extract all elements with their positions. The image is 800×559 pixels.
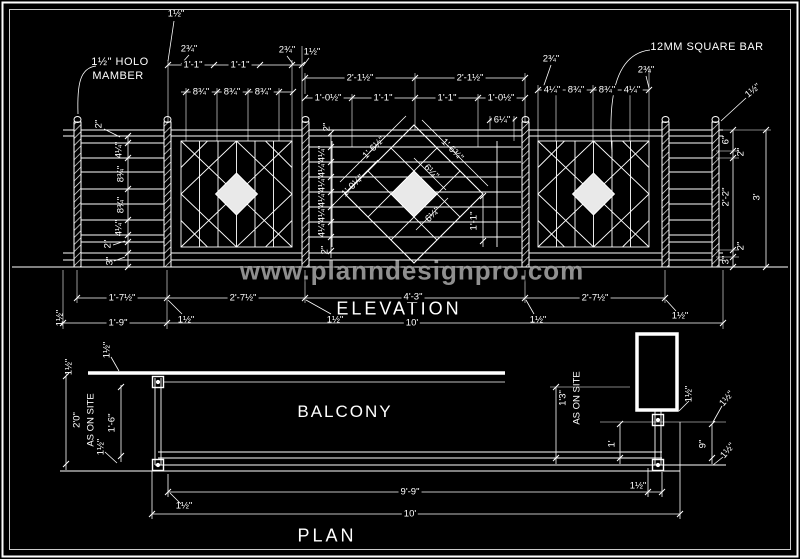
holo-member-callout-line2: MAMBER	[92, 70, 143, 82]
dim-label: 2¾"	[638, 65, 655, 75]
dim-label: 4¼"	[114, 220, 124, 237]
dim-label: 1½"	[168, 9, 185, 19]
dim-label: 1'-9"	[107, 318, 130, 328]
plan-title: PLAN	[297, 526, 356, 547]
dim-label: 1½"	[102, 342, 112, 359]
dim-label: 10'	[404, 318, 420, 328]
dim-label: 1½"	[530, 315, 547, 325]
dim-label: 1'-6"	[107, 414, 117, 433]
dim-label: 1'-0½"	[486, 93, 517, 103]
dim-label: 1½"	[55, 310, 65, 327]
dim-label: 2'-7½"	[228, 293, 259, 303]
dim-label: 6¼"	[492, 115, 513, 125]
plan-dims	[66, 357, 723, 519]
dim-label: 9"	[698, 440, 708, 449]
dim-label: 1½"	[176, 501, 193, 511]
dim-label: 1½"	[630, 481, 647, 491]
dim-label: 3"	[721, 256, 731, 265]
plan-linework	[60, 334, 726, 471]
dim-label: 1'-1"	[436, 93, 459, 103]
watermark: www.planndesignpro.com	[240, 256, 585, 287]
dim-label: 8¾"	[253, 87, 274, 97]
dim-label: 2'-1½"	[345, 73, 376, 83]
holo-member-callout-line1: 1½" HOLO	[91, 56, 148, 68]
dim-label: 1'-1"	[229, 60, 252, 70]
dim-label: 2'-7½"	[580, 293, 611, 303]
dim-label: AS ON SITE	[572, 371, 582, 424]
dim-label: 4¼"	[114, 142, 124, 159]
dim-label: 2¾"	[181, 44, 198, 54]
dim-label: 2"	[320, 246, 330, 255]
elevation-title: ELEVATION	[336, 299, 461, 320]
square-bar-callout: 12MM SQUARE BAR	[650, 41, 763, 53]
dim-label: 1'-0½"	[313, 93, 344, 103]
dim-label: 1½"	[178, 315, 195, 325]
dim-label: 4¼"	[622, 85, 643, 95]
dim-label: 4¼"	[542, 85, 563, 95]
column	[637, 334, 677, 410]
dim-label: 1½"	[672, 311, 689, 321]
dim-label: 1'	[607, 440, 617, 447]
dim-label: 2'0"	[72, 412, 82, 428]
cad-drawing: www.planndesignpro.com ELEVATION PLAN BA…	[0, 0, 800, 559]
dim-label: 8¾"	[566, 85, 587, 95]
dim-label: 1½"	[64, 359, 74, 376]
dim-label: 1½"	[684, 386, 694, 403]
dim-label: 3'	[752, 193, 762, 200]
dim-label: 1'-1"	[469, 212, 479, 231]
dim-label: 1'-1"	[372, 93, 395, 103]
dim-label: 1'3"	[558, 390, 568, 406]
dim-label: 2"	[103, 240, 113, 249]
dim-label: 4¼"	[317, 221, 327, 238]
dim-label: 10'	[402, 509, 418, 519]
dim-label: 8¾"	[597, 85, 618, 95]
dim-label: 2¾"	[543, 54, 560, 64]
dim-label: 8¾"	[116, 197, 126, 214]
dim-label: 2"	[322, 123, 332, 132]
dim-label: 1½"	[327, 315, 344, 325]
dim-label: 8¾"	[191, 87, 212, 97]
dim-label: 8¾"	[222, 87, 243, 97]
dim-label: 6"	[721, 136, 731, 145]
dim-label: 4'-3"	[402, 292, 425, 302]
dim-label: 2"	[736, 148, 746, 157]
dim-label: 9'-9"	[399, 487, 422, 497]
dim-label: 1'-1"	[182, 60, 205, 70]
balcony-label: BALCONY	[297, 402, 392, 422]
dim-label: 2'-2"	[721, 188, 731, 207]
dim-label: 1½"	[304, 47, 321, 57]
dim-label: 3"	[105, 257, 115, 266]
dim-label: 2¾"	[279, 45, 296, 55]
dim-label: 1½"	[96, 439, 106, 456]
dim-label: 2"	[736, 242, 746, 251]
dim-label: 2'-1½"	[455, 73, 486, 83]
dim-label: 8¾"	[116, 166, 126, 183]
dim-label: 2"	[94, 120, 104, 129]
dim-label: 1'-7½"	[107, 293, 138, 303]
